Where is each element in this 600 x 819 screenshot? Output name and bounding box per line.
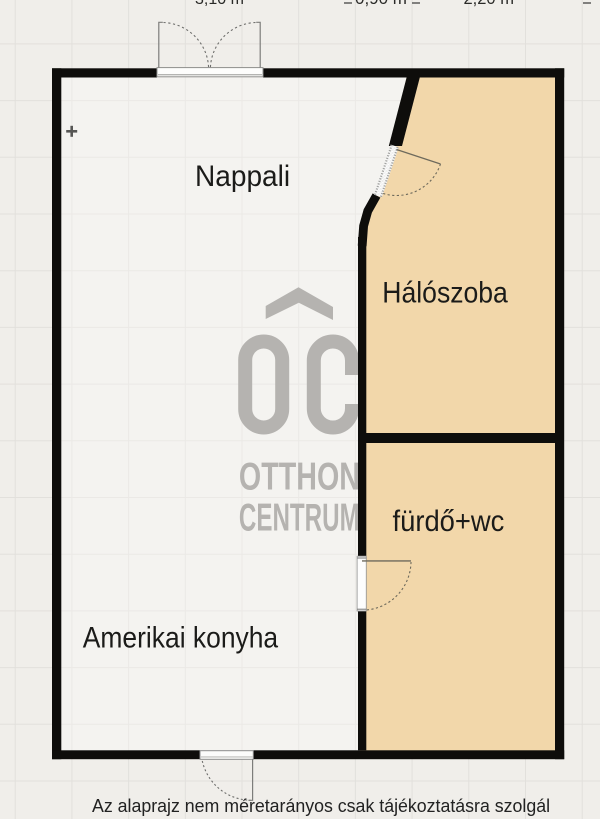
svg-text:Amerikai konyha: Amerikai konyha [83, 620, 279, 654]
svg-text:0,90 m: 0,90 m [355, 0, 407, 8]
svg-text:Hálószoba: Hálószoba [382, 276, 508, 310]
svg-text:OTTHON: OTTHON [239, 455, 360, 498]
svg-text:3,10 m: 3,10 m [195, 0, 244, 8]
svg-text:Az alaprajz nem méretarányos c: Az alaprajz nem méretarányos csak tájéko… [92, 796, 550, 816]
svg-text:Nappali: Nappali [195, 160, 290, 193]
svg-text:CENTRUM: CENTRUM [239, 496, 360, 539]
svg-text:fürdő+wc: fürdő+wc [393, 505, 505, 538]
svg-text:2,20 m: 2,20 m [464, 0, 514, 8]
